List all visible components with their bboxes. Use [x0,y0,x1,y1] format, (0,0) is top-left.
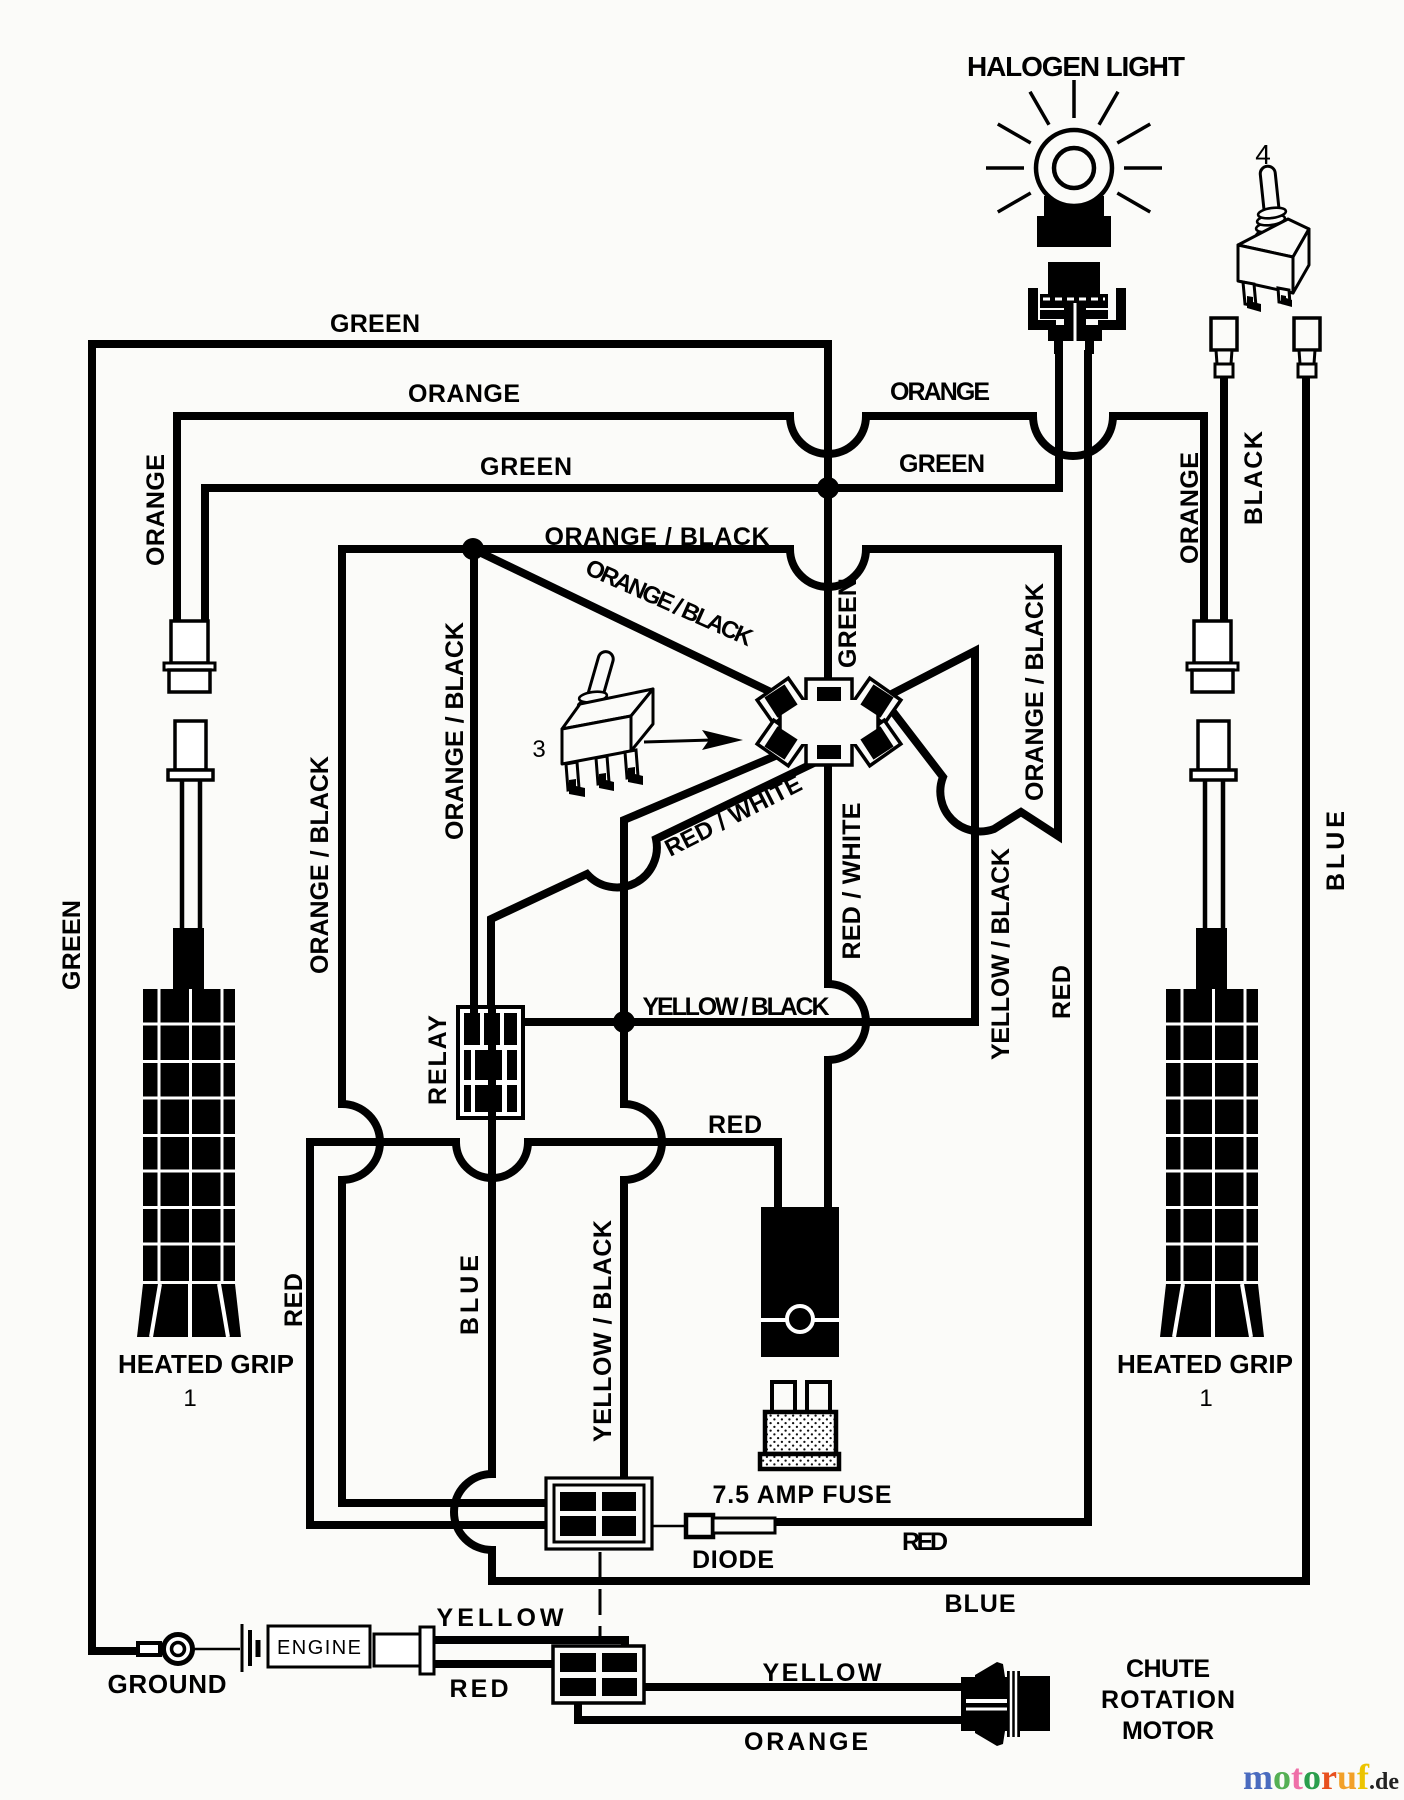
svg-text:RED: RED [450,1675,509,1703]
svg-text:1: 1 [1199,1385,1212,1412]
svg-text:ORANGE: ORANGE [890,378,990,406]
svg-text:ORANGE / BLACK: ORANGE / BLACK [306,756,334,974]
svg-text:ORANGE / BLACK: ORANGE / BLACK [441,622,469,840]
svg-text:BLACK: BLACK [1240,431,1268,525]
svg-text:HEATED GRIP: HEATED GRIP [118,1349,294,1379]
svg-text:1: 1 [183,1385,196,1412]
svg-text:YELLOW / BLACK: YELLOW / BLACK [589,1220,617,1442]
svg-text:ORANGE: ORANGE [142,454,170,566]
svg-text:HEATED GRIP: HEATED GRIP [1117,1349,1293,1379]
svg-text:ENGINE: ENGINE [277,1637,361,1659]
svg-text:RED: RED [280,1273,308,1327]
svg-text:RED: RED [1048,965,1076,1019]
svg-text:CHUTE: CHUTE [1126,1655,1210,1683]
svg-text:RED: RED [902,1528,948,1556]
svg-text:ORANGE / BLACK: ORANGE / BLACK [1021,583,1049,801]
svg-text:ROTATION: ROTATION [1101,1686,1235,1714]
svg-text:3: 3 [532,736,545,763]
svg-text:RELAY: RELAY [424,1015,452,1105]
svg-text:YELLOW / BLACK: YELLOW / BLACK [643,993,830,1021]
svg-text:RED / WHITE: RED / WHITE [838,803,866,960]
svg-text:RED: RED [708,1111,762,1139]
svg-text:MOTOR: MOTOR [1122,1717,1214,1745]
svg-text:GREEN: GREEN [330,310,420,338]
svg-text:ORANGE: ORANGE [1176,452,1204,564]
svg-text:DIODE: DIODE [692,1546,774,1574]
svg-text:GROUND: GROUND [108,1669,227,1699]
svg-text:GREEN: GREEN [834,578,862,668]
svg-text:YELLOW / BLACK: YELLOW / BLACK [987,848,1015,1060]
svg-text:GREEN: GREEN [58,900,86,990]
svg-text:HALOGEN LIGHT: HALOGEN LIGHT [967,51,1185,82]
svg-text:GREEN: GREEN [480,453,572,481]
svg-text:BLUE: BLUE [945,1590,1016,1618]
svg-text:ORANGE / BLACK: ORANGE / BLACK [545,523,770,551]
svg-text:ORANGE: ORANGE [408,380,520,408]
svg-text:7.5 AMP FUSE: 7.5 AMP FUSE [713,1481,892,1509]
svg-text:GREEN: GREEN [899,450,985,478]
